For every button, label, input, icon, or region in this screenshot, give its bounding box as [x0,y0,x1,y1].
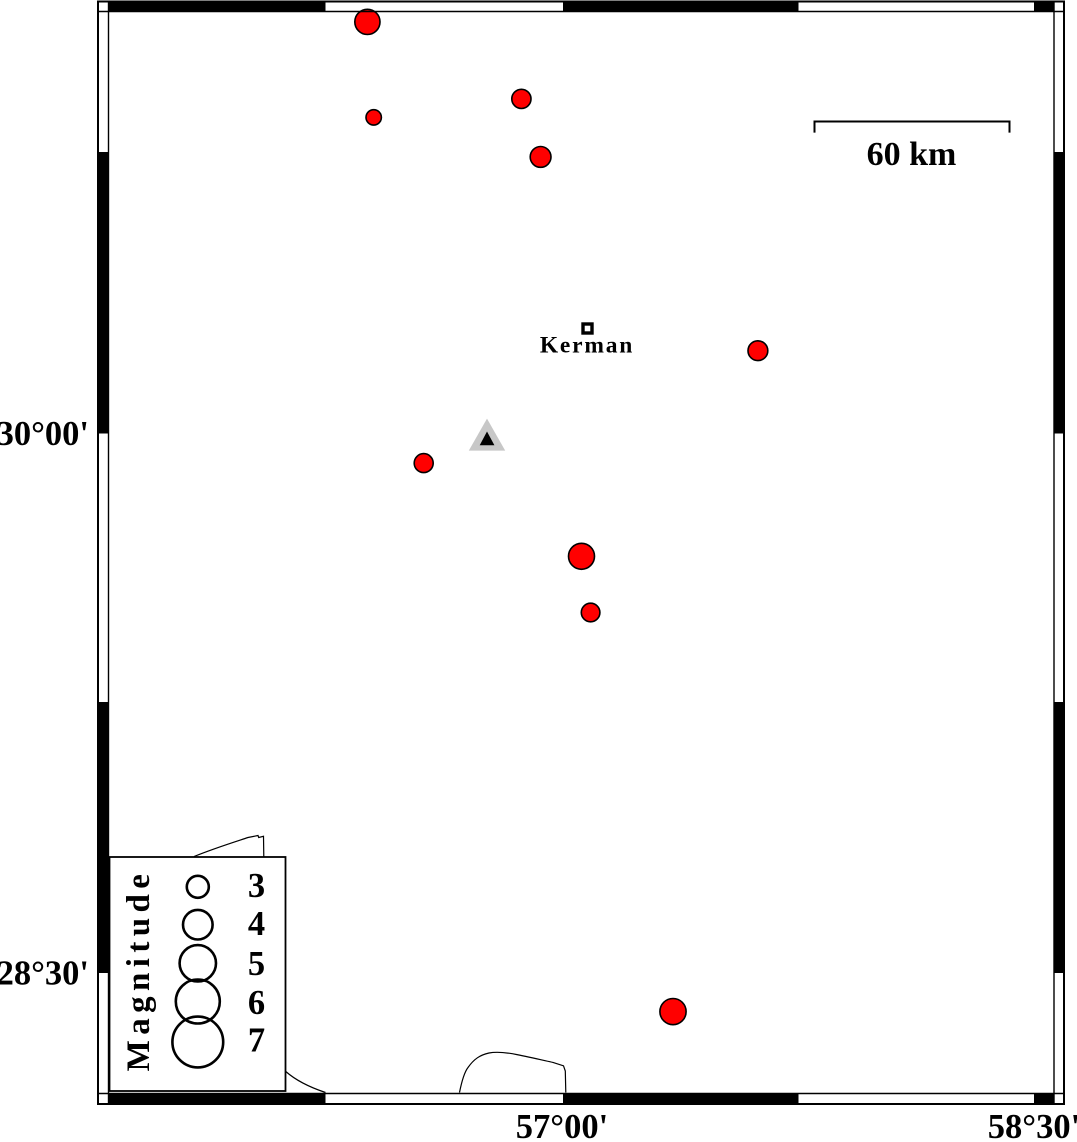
svg-text:7: 7 [248,1022,265,1060]
svg-text:57°00': 57°00' [516,1108,608,1142]
svg-text:Magnitude: Magnitude [121,869,157,1072]
svg-text:60 km: 60 km [867,136,957,173]
svg-text:30°00': 30°00' [0,415,89,453]
svg-text:28°30': 28°30' [0,954,89,992]
svg-text:4: 4 [248,905,265,943]
svg-text:6: 6 [248,984,265,1022]
svg-text:3: 3 [248,867,265,905]
svg-text:5: 5 [248,945,265,983]
svg-text:Kerman: Kerman [540,333,634,359]
svg-text:58°30': 58°30' [988,1108,1077,1142]
